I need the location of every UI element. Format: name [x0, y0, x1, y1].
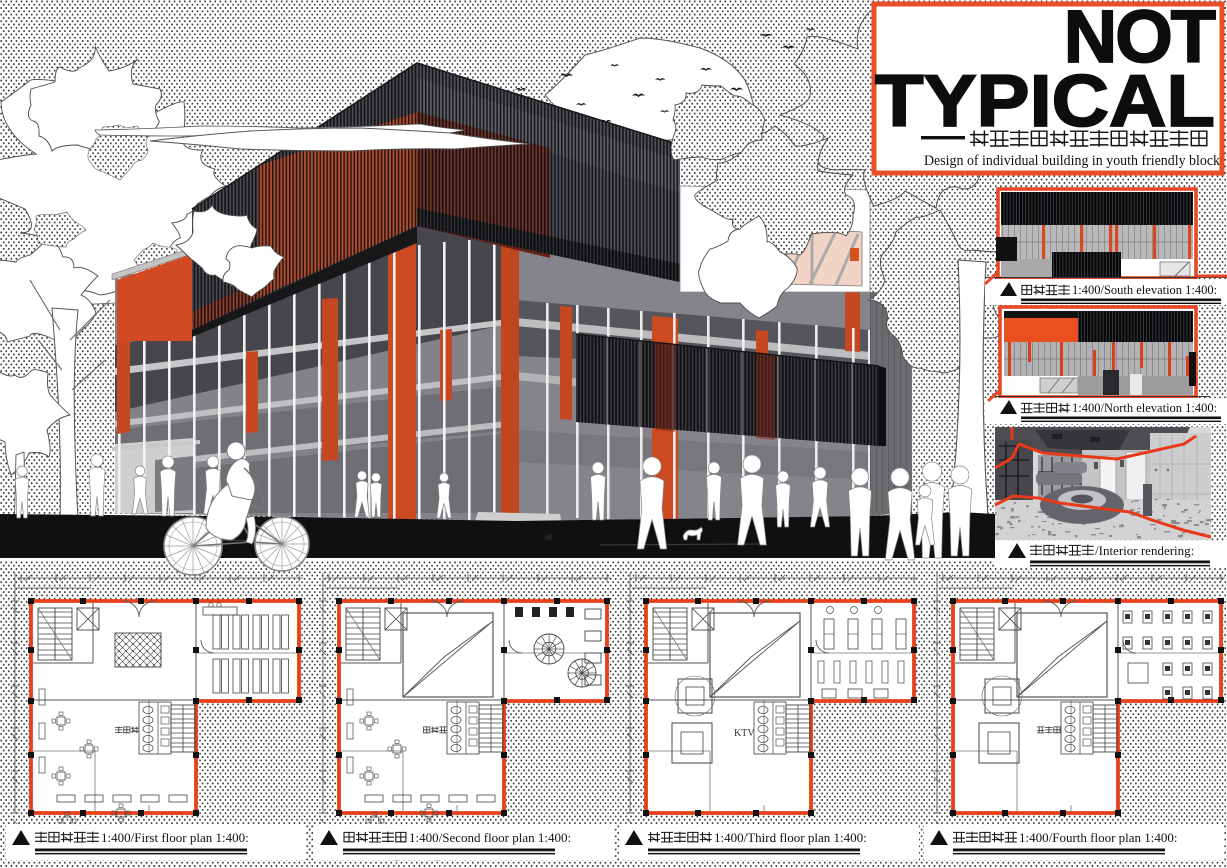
svg-text:Design of individual building: Design of individual building in youth f…: [924, 153, 1221, 169]
svg-text:KTV: KTV: [734, 728, 755, 739]
svg-text:1:400/North elevation 1:400:: 1:400/North elevation 1:400:: [1072, 401, 1217, 415]
svg-text:1:400/Third floor plan 1:400:: 1:400/Third floor plan 1:400:: [714, 830, 867, 845]
svg-text:1:400/First floor plan 1:400:: 1:400/First floor plan 1:400:: [101, 830, 249, 845]
svg-text:TYPICAL: TYPICAL: [875, 61, 1215, 142]
svg-text:1:400/Fourth floor plan 1:400:: 1:400/Fourth floor plan 1:400:: [1019, 830, 1178, 845]
svg-text:1:400/Second floor plan 1:400:: 1:400/Second floor plan 1:400:: [409, 830, 571, 845]
svg-text:/Interior rendering:: /Interior rendering:: [1095, 543, 1194, 558]
svg-text:1:400/South elevation 1:400:: 1:400/South elevation 1:400:: [1072, 283, 1217, 297]
